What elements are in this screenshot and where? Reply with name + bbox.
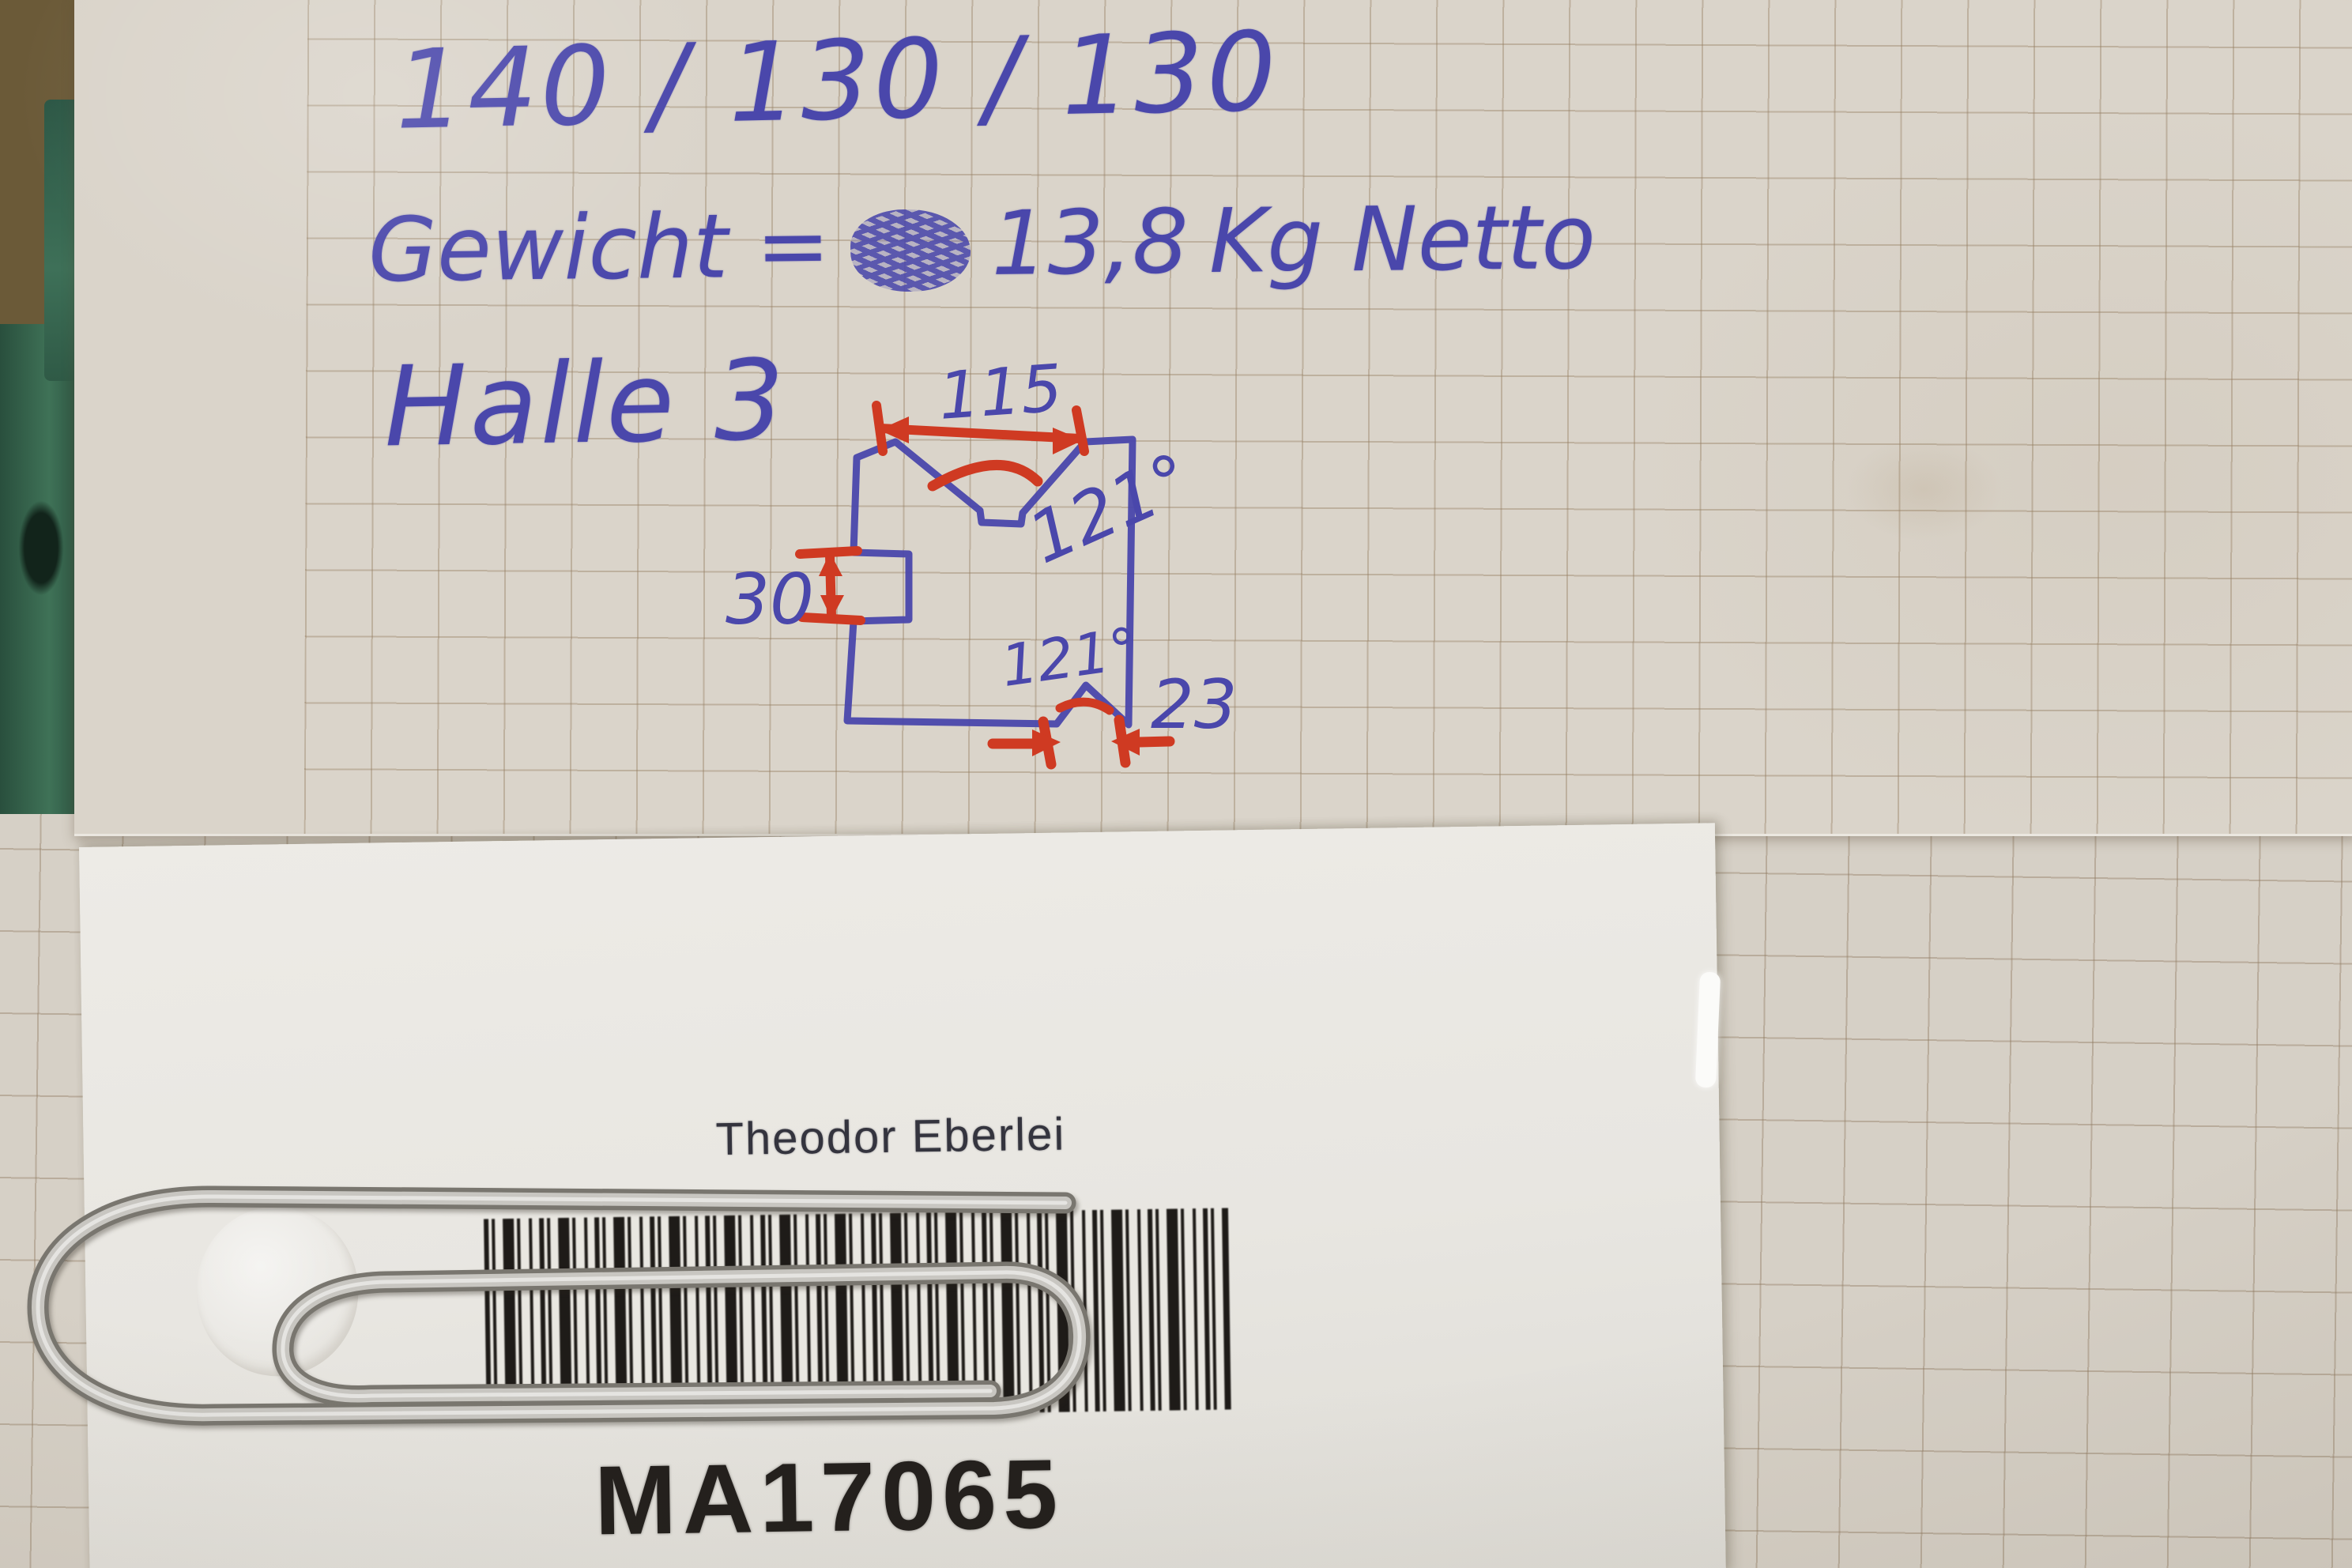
- crossed-out-value: [850, 209, 971, 292]
- angle-upper-label: 121°: [1016, 437, 1203, 579]
- dim-left-label: 30: [726, 559, 814, 640]
- dim-bottom-label: 23: [1151, 665, 1237, 744]
- lower-angle-arc: [1060, 702, 1110, 710]
- technical-sketch: 115 121° 30 121° 23: [711, 355, 1265, 797]
- angle-lower-label: 121°: [997, 615, 1142, 699]
- photo-handwritten-note: 140 / 130 / 130 Gewicht = 13,8 Kg Netto …: [0, 0, 2352, 1568]
- note-weight-line: Gewicht = 13,8 Kg Netto: [367, 187, 1596, 302]
- paper-clip-icon: [14, 1168, 1121, 1453]
- graph-paper-sheet: 140 / 130 / 130 Gewicht = 13,8 Kg Netto …: [74, 0, 2352, 836]
- person-name: Theodor Eberlei: [715, 1108, 1066, 1167]
- dim-top-label: 115: [936, 355, 1065, 435]
- paper-clip-wire-shadow: [38, 1197, 1080, 1415]
- label-code: MA17065: [594, 1438, 1065, 1558]
- upper-angle-arc: [933, 465, 1038, 486]
- note-dimensions-line: 140 / 130 / 130: [394, 8, 1280, 153]
- weight-value: 13,8: [991, 190, 1189, 296]
- weight-unit: Kg Netto: [1208, 187, 1596, 293]
- paper-stain: [1845, 438, 2003, 541]
- weight-label: Gewicht =: [367, 194, 831, 302]
